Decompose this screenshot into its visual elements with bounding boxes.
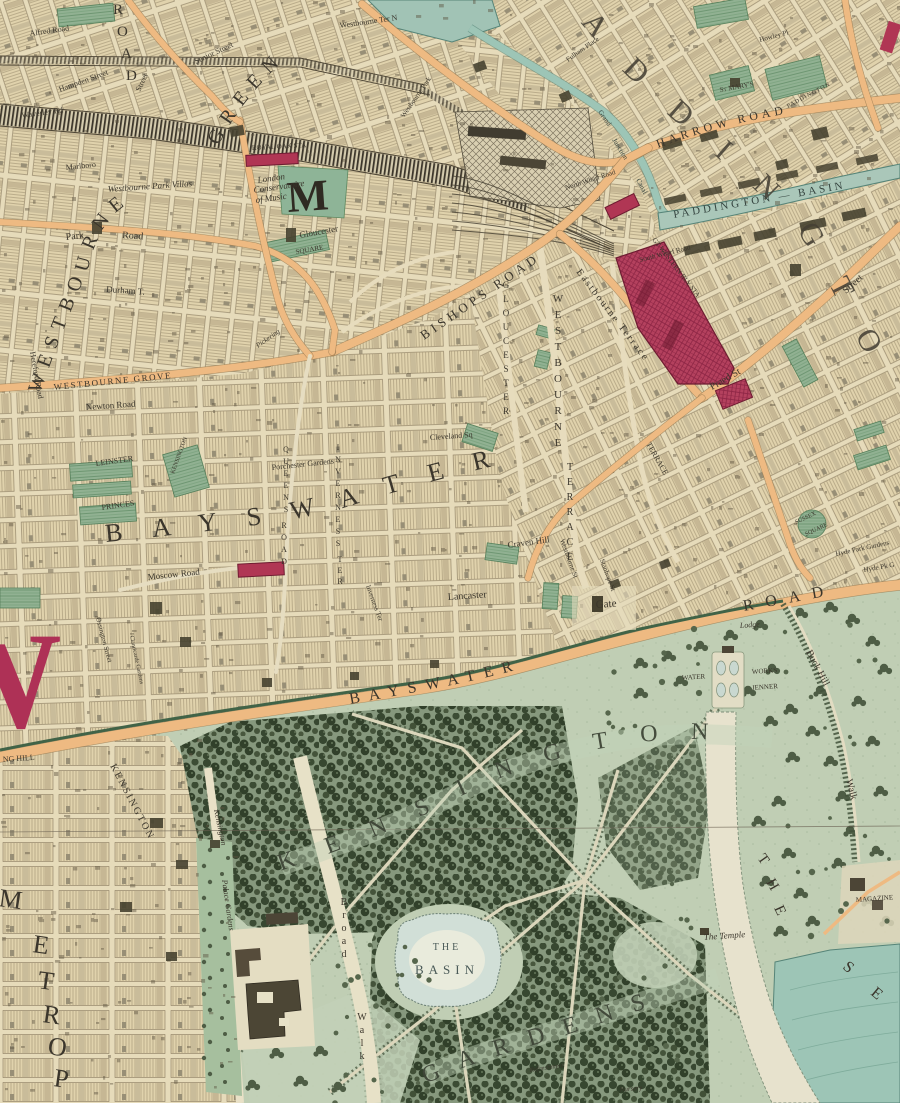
svg-text:T: T [503,378,509,388]
svg-text:T: T [567,462,573,473]
svg-text:W: W [0,604,62,757]
svg-text:R: R [554,405,562,417]
svg-text:E: E [503,350,509,360]
svg-text:I: I [337,443,340,452]
svg-text:o: o [342,923,347,934]
svg-text:E: E [503,392,509,402]
svg-text:E: E [338,566,343,575]
svg-text:N: N [335,455,341,464]
svg-text:S: S [503,364,508,374]
svg-text:N: N [335,503,341,512]
svg-text:S: S [284,505,288,514]
svg-text:T: T [338,555,343,564]
svg-text:O: O [46,1031,69,1062]
svg-text:S: S [555,325,561,337]
svg-text:N: N [283,493,289,502]
svg-text:d: d [342,949,347,960]
svg-text:M: M [285,170,330,222]
svg-text:S: S [336,539,340,548]
svg-text:R: R [281,521,287,530]
svg-text:k: k [360,1051,365,1062]
svg-text:R: R [567,507,574,518]
svg-text:A: A [281,545,287,554]
svg-text:R: R [337,577,343,586]
svg-text:S: S [336,527,340,536]
svg-text:O: O [117,24,128,40]
svg-text:B: B [554,357,561,369]
svg-text:O: O [503,308,510,318]
svg-text:E: E [284,481,289,490]
svg-text:R: R [113,2,123,18]
svg-text:V: V [335,467,341,476]
svg-text:THE: THE [433,942,461,953]
svg-text:B: B [341,897,348,908]
svg-text:E: E [336,479,341,488]
svg-text:G: G [503,280,510,290]
svg-text:BASIN: BASIN [415,962,479,977]
svg-text:L: L [503,294,509,304]
svg-text:E: E [555,437,562,449]
svg-text:M: M [0,883,24,915]
svg-text:Gate: Gate [595,598,617,611]
svg-text:Lodge: Lodge [739,620,761,630]
svg-text:R: R [567,492,574,503]
svg-text:U: U [554,389,562,401]
svg-text:R: R [503,406,509,416]
svg-text:W: W [553,293,564,305]
svg-text:Road: Road [122,230,144,242]
svg-text:D: D [281,557,287,566]
svg-text:N: N [554,421,562,433]
svg-text:Park: Park [65,230,84,243]
svg-text:E: E [567,477,573,488]
svg-text:a: a [360,1025,365,1036]
svg-text:R: R [335,491,341,500]
svg-text:T: T [555,341,562,353]
svg-text:A: A [566,522,574,533]
svg-text:Q: Q [283,445,289,454]
svg-text:W: W [357,1012,367,1023]
svg-text:U: U [503,322,510,332]
svg-text:E: E [336,515,341,524]
svg-text:a: a [342,936,347,947]
svg-text:l: l [361,1038,364,1049]
svg-text:WATER: WATER [682,672,706,682]
svg-text:A: A [121,46,132,62]
svg-text:D: D [126,68,137,84]
svg-text:O: O [281,533,287,542]
svg-text:E: E [555,309,562,321]
svg-text:C: C [503,336,509,346]
svg-text:O: O [554,373,562,385]
